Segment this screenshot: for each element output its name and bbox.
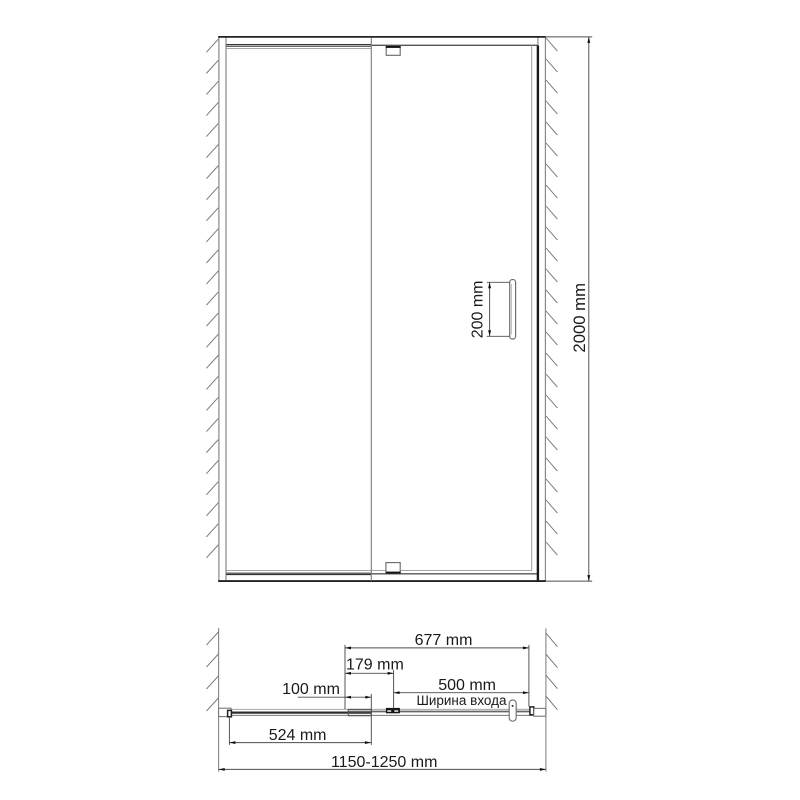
svg-text:500 mm: 500 mm <box>438 677 496 694</box>
svg-text:200 mm: 200 mm <box>470 281 487 339</box>
svg-text:1150-1250 mm: 1150-1250 mm <box>331 754 437 771</box>
svg-text:677 mm: 677 mm <box>415 632 473 649</box>
svg-text:Ширина входа: Ширина входа <box>416 693 507 708</box>
svg-text:100 mm: 100 mm <box>282 681 340 698</box>
svg-text:179 mm: 179 mm <box>346 657 404 674</box>
svg-text:524 mm: 524 mm <box>269 727 327 744</box>
svg-text:2000 mm: 2000 mm <box>570 283 589 353</box>
